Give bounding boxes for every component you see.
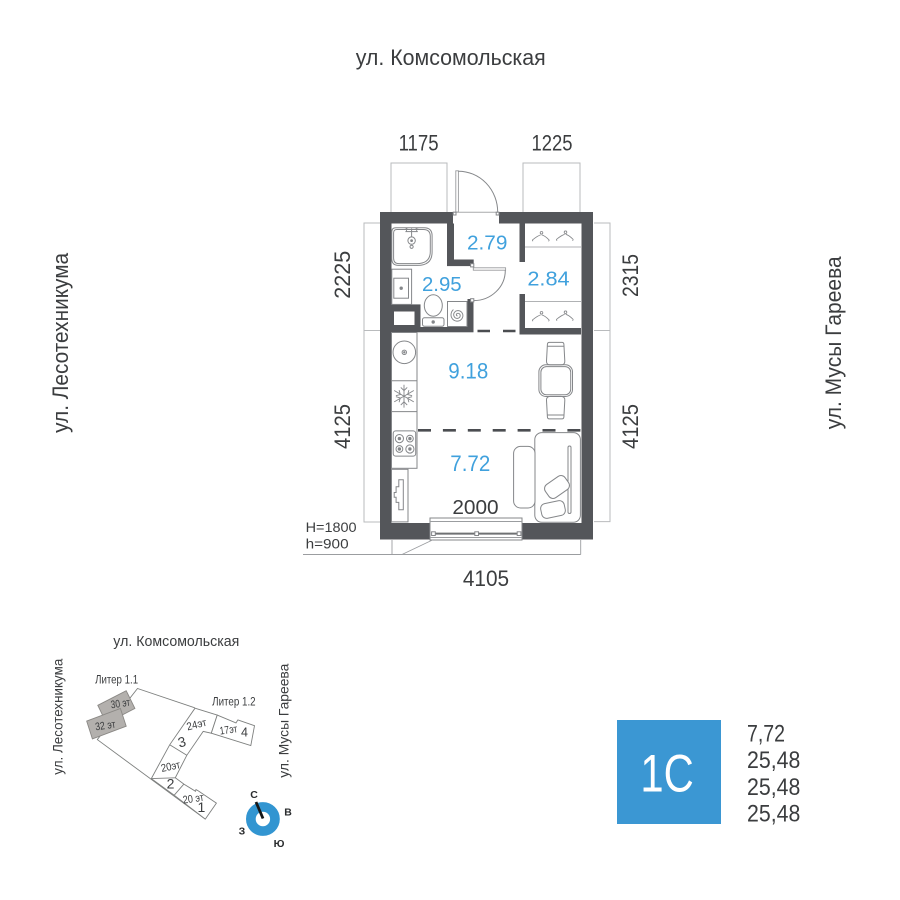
svg-text:1225: 1225 — [532, 131, 573, 156]
svg-text:ул. Комсомольская: ул. Комсомольская — [356, 45, 546, 70]
svg-text:Ю: Ю — [274, 838, 285, 850]
svg-text:4125: 4125 — [618, 404, 643, 449]
svg-text:Н=1800: Н=1800 — [306, 519, 357, 535]
svg-text:9.18: 9.18 — [448, 358, 488, 383]
svg-text:2315: 2315 — [618, 254, 643, 297]
svg-text:1175: 1175 — [399, 131, 439, 156]
svg-text:2.95: 2.95 — [422, 273, 462, 296]
svg-text:17эт: 17эт — [219, 723, 238, 737]
svg-text:7.72: 7.72 — [450, 451, 490, 476]
svg-text:1: 1 — [198, 799, 206, 815]
svg-text:1С: 1С — [640, 744, 693, 803]
svg-text:З: З — [239, 825, 246, 837]
svg-text:ул. Комсомольская: ул. Комсомольская — [113, 633, 239, 650]
svg-text:4105: 4105 — [463, 566, 509, 591]
svg-text:ул. Лесотехникума: ул. Лесотехникума — [48, 252, 73, 433]
svg-text:ул. Мусы Гареева: ул. Мусы Гареева — [276, 663, 291, 777]
svg-text:25,48: 25,48 — [747, 747, 800, 774]
svg-text:С: С — [250, 789, 258, 801]
svg-text:7,72: 7,72 — [747, 721, 785, 748]
svg-text:h=900: h=900 — [306, 535, 349, 551]
svg-text:2225: 2225 — [330, 251, 355, 299]
svg-text:4: 4 — [241, 726, 248, 740]
svg-text:ул. Мусы Гареева: ул. Мусы Гареева — [821, 256, 846, 430]
svg-text:2.79: 2.79 — [467, 231, 507, 254]
svg-text:25,48: 25,48 — [747, 774, 800, 801]
svg-text:Литер 1.1: Литер 1.1 — [95, 675, 138, 687]
svg-text:Литер 1.2: Литер 1.2 — [212, 697, 256, 709]
svg-text:ул. Лесотехникума: ул. Лесотехникума — [50, 658, 65, 774]
svg-text:В: В — [284, 806, 292, 818]
svg-text:4125: 4125 — [330, 404, 355, 449]
svg-text:2.84: 2.84 — [527, 268, 569, 291]
svg-text:2: 2 — [167, 775, 175, 791]
svg-text:25,48: 25,48 — [747, 801, 800, 828]
svg-text:2000: 2000 — [452, 497, 498, 519]
